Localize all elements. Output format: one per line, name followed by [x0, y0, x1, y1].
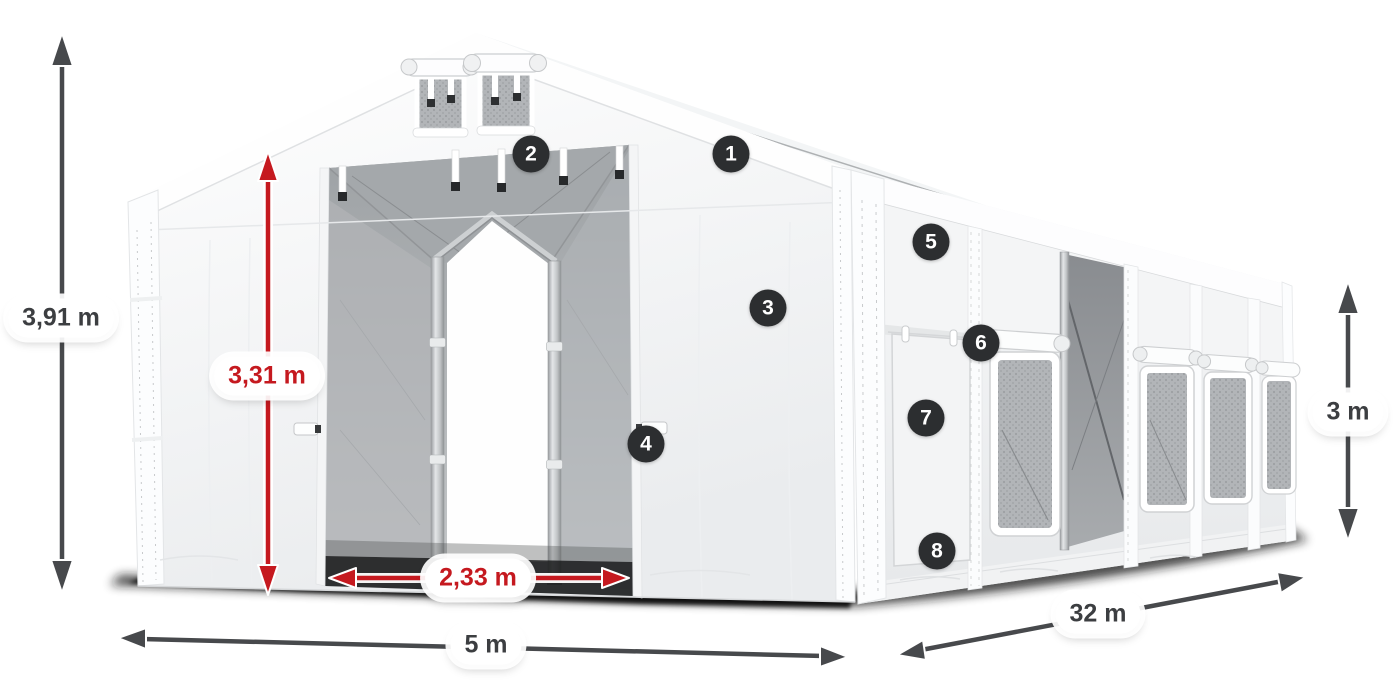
- dimension-label-width: 5 m: [450, 626, 521, 665]
- part-marker-3[interactable]: 3: [750, 290, 787, 327]
- side-doorway-opening: [1060, 252, 1128, 550]
- side-door-panel: [888, 326, 974, 566]
- side-window-3: [1197, 354, 1259, 504]
- side-window-2: [1133, 346, 1204, 512]
- dimension-label-door-height: 3,31 m: [214, 357, 320, 396]
- tent-dimensions-diagram: 3,91 m 3,31 m 2,33 m 5 m 32 m 3 m 1 2 3 …: [0, 0, 1400, 700]
- tent-illustration: [0, 0, 1400, 700]
- part-marker-1[interactable]: 1: [713, 136, 750, 173]
- part-marker-4[interactable]: 4: [628, 426, 665, 463]
- dimension-label-length: 32 m: [1056, 595, 1141, 634]
- side-window-1: [979, 329, 1070, 536]
- part-marker-8[interactable]: 8: [919, 533, 956, 570]
- dimension-label-door-width: 2,33 m: [425, 559, 531, 598]
- part-marker-7[interactable]: 7: [908, 400, 945, 437]
- door-handle-left: [294, 423, 321, 435]
- part-marker-6[interactable]: 6: [963, 325, 1000, 362]
- side-window-4: [1256, 360, 1301, 494]
- part-marker-2[interactable]: 2: [513, 136, 550, 173]
- dimension-label-total-height: 3,91 m: [8, 299, 114, 338]
- part-marker-5[interactable]: 5: [913, 224, 950, 261]
- front-gable: [128, 33, 855, 602]
- dimension-label-side-height: 3 m: [1312, 393, 1383, 432]
